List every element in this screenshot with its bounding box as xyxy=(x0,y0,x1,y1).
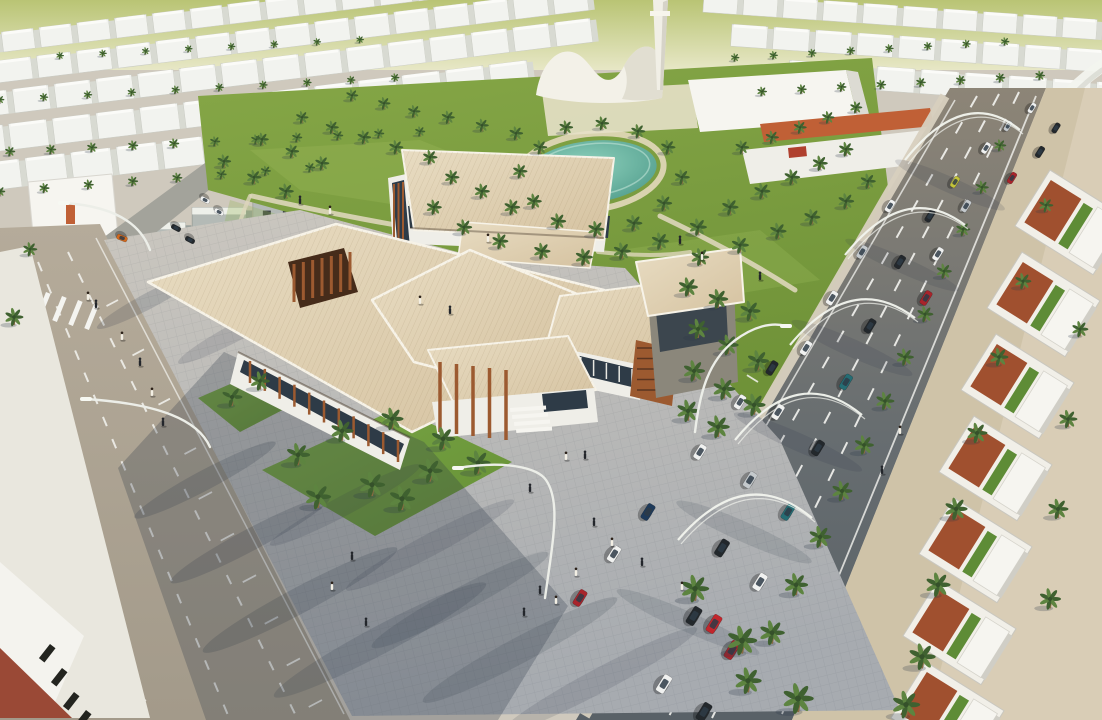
white-villa-door xyxy=(66,204,75,224)
minaret-balcony xyxy=(650,11,670,16)
rendered-scene xyxy=(0,0,1102,720)
aerial-render-canvas xyxy=(0,0,1102,720)
commercial-red-kiosk xyxy=(788,146,807,158)
commercial-box2 xyxy=(700,92,728,116)
